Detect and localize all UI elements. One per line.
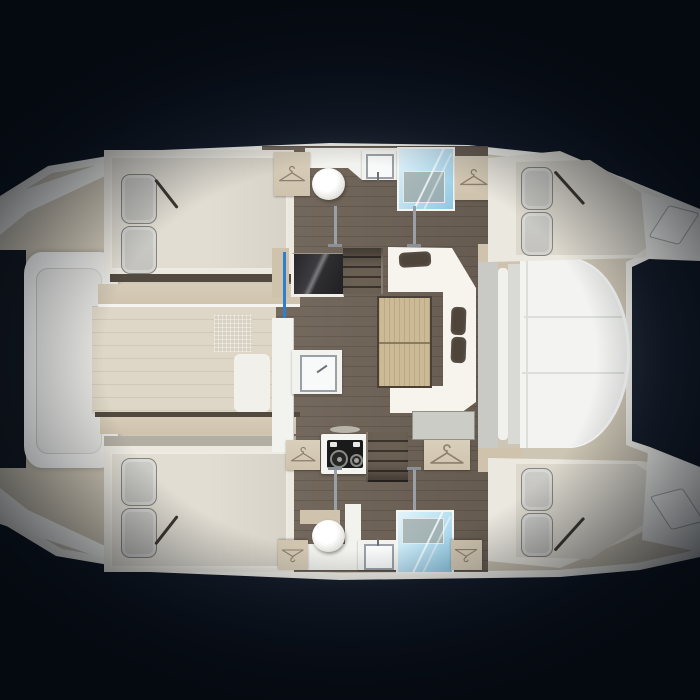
faucet [377,538,379,546]
stove-knob [330,442,337,447]
bed-head-band-lower [104,436,296,446]
trampoline [0,250,26,468]
pillow [521,167,553,210]
bed-seam-upper [110,274,292,282]
galley-locker [272,248,289,298]
toilet-icon [312,168,345,200]
deck-hatch [214,314,252,352]
support-post-bar [407,244,421,247]
wardrobe-lower-right [451,540,482,570]
shower-tray [402,518,444,544]
support-post-bar [328,244,342,247]
pillow [121,458,157,506]
wardrobe-mid-right [424,440,470,470]
cockpit-bench-highlight [498,268,508,440]
hanger-icon [454,547,478,563]
shelf-upper [98,284,300,306]
stairs-to-lower-hull [366,432,408,482]
cockpit-seat-seam [526,258,528,448]
salon-table [377,296,432,388]
stove-knob [353,442,360,447]
wardrobe-lower-left [278,540,308,570]
toilet-icon [312,520,345,552]
pillow [521,212,553,256]
pillow [521,468,553,511]
pillow [121,174,157,224]
galley-sink-basin [300,355,337,392]
faucet [377,172,379,181]
support-post [413,468,416,512]
stove-vent [330,426,360,433]
foredeck-locker [234,354,270,412]
support-post-bar [328,467,342,470]
nav-glass-panel [291,253,344,297]
shelf-lower [100,417,296,434]
cockpit-seat-seam [524,316,622,318]
shelf-edge-upper [98,304,300,307]
galley-counter [272,318,294,452]
sofa-cushion [451,337,467,364]
support-post [413,206,416,246]
cockpit-seat-seam [522,372,624,374]
pillow [521,513,553,557]
sofa-cushion [399,251,432,268]
cockpit-bench-left [478,262,498,448]
hanger-icon [281,547,304,563]
stove-burner-small [350,454,363,467]
aft-salon-storage [412,411,475,440]
wardrobe-upper-left [274,152,310,196]
shower-lower [396,510,454,574]
hanger-icon [278,165,306,184]
sofa-cushion [451,307,467,336]
stove-burner-large [330,450,348,468]
shower-upper [397,147,455,211]
hanger-icon [459,168,489,188]
pillow [121,226,157,274]
wardrobe-upper-right [455,156,493,200]
table-seam [379,342,430,344]
support-post [334,468,337,512]
pillow [121,508,157,558]
catamaran-floorplan-scene [0,0,700,700]
wardrobe-mid-left [286,440,320,470]
hanger-icon [429,443,465,467]
shower-tray [403,171,445,203]
hanger-icon [290,446,317,464]
support-post [334,206,337,246]
sink-basin [364,544,394,570]
support-post-bar [407,467,421,470]
sink-basin [366,154,394,179]
stairs-to-upper-hull [343,248,383,294]
